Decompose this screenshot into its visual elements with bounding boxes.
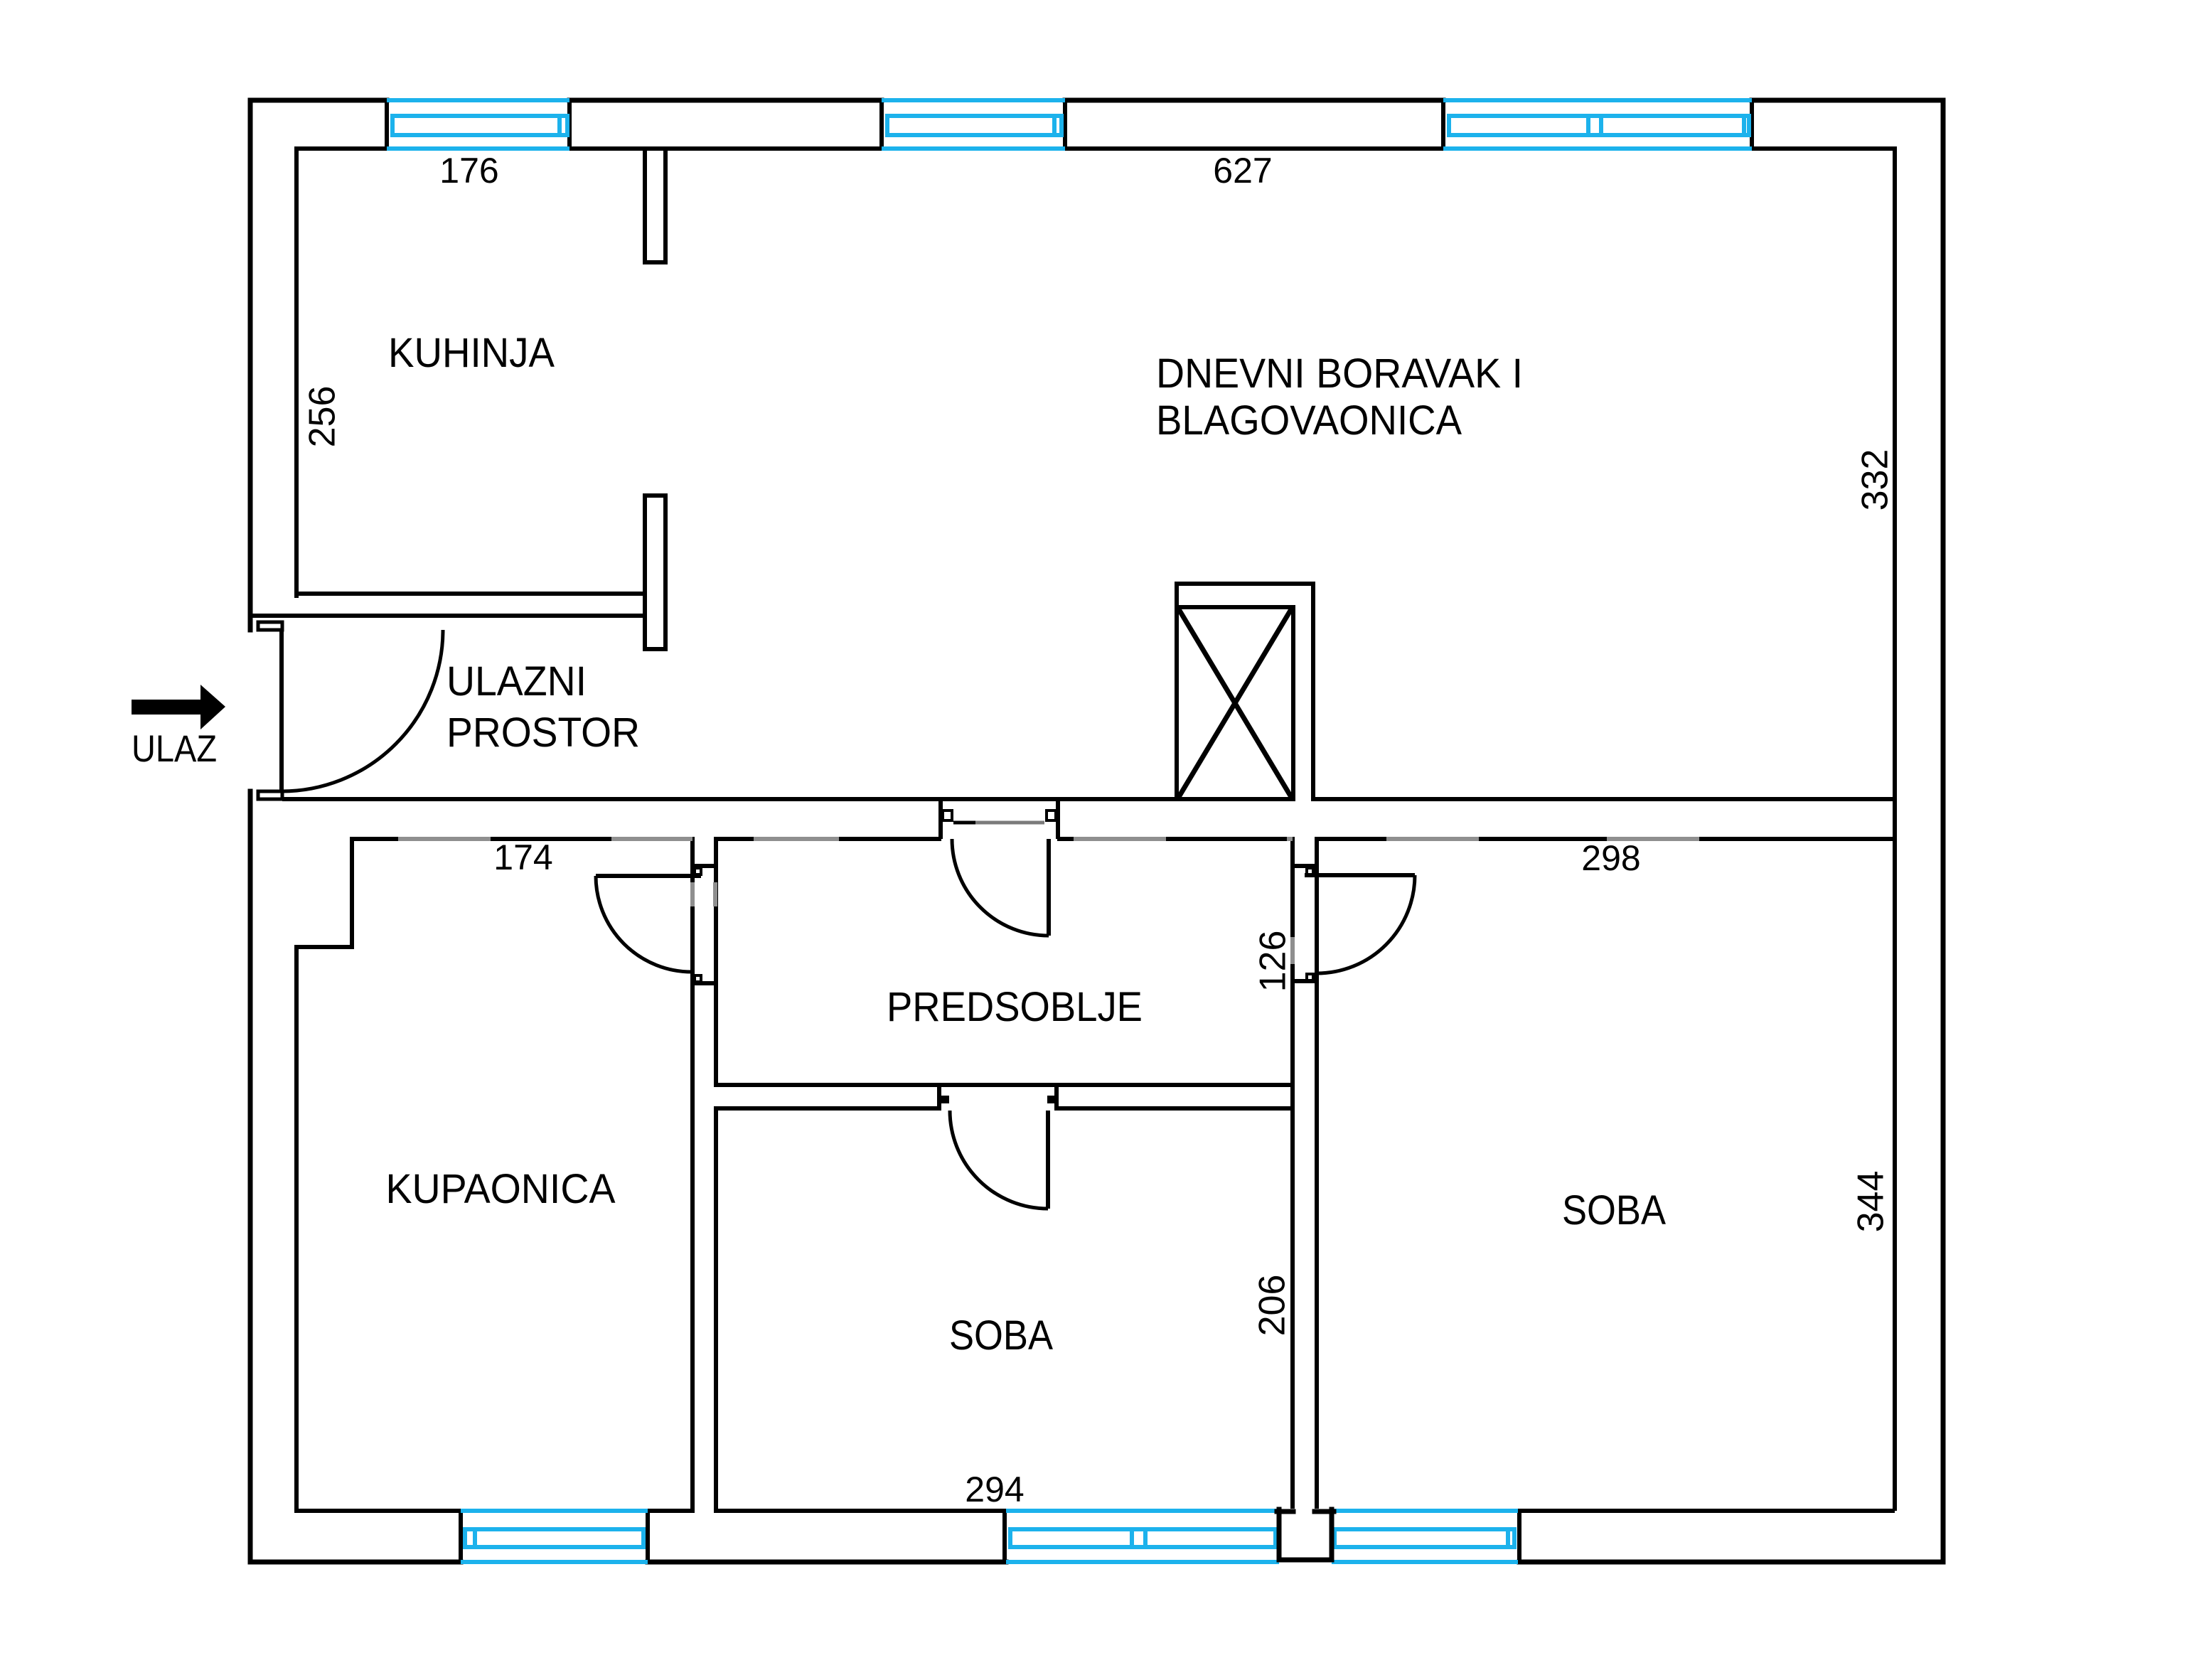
svg-text:294: 294 [965, 1470, 1024, 1509]
svg-text:DNEVNI BORAVAK I: DNEVNI BORAVAK I [1156, 351, 1523, 397]
svg-text:332: 332 [1855, 449, 1896, 511]
svg-text:SOBA: SOBA [1562, 1187, 1666, 1234]
svg-text:PREDSOBLJE: PREDSOBLJE [887, 984, 1143, 1030]
svg-text:SOBA: SOBA [949, 1312, 1053, 1359]
svg-text:BLAGOVAONICA: BLAGOVAONICA [1156, 397, 1462, 444]
svg-text:ULAZ: ULAZ [132, 728, 217, 770]
svg-text:298: 298 [1581, 838, 1640, 878]
svg-text:126: 126 [1253, 931, 1294, 993]
svg-text:ULAZNI: ULAZNI [446, 658, 587, 705]
svg-text:206: 206 [1252, 1275, 1293, 1337]
svg-text:KUPAONICA: KUPAONICA [386, 1166, 616, 1212]
svg-text:PROSTOR: PROSTOR [446, 710, 640, 756]
svg-text:KUHINJA: KUHINJA [388, 330, 555, 376]
svg-text:344: 344 [1851, 1171, 1892, 1233]
svg-text:174: 174 [493, 838, 552, 877]
svg-text:256: 256 [302, 386, 343, 448]
svg-text:627: 627 [1213, 151, 1272, 191]
svg-text:176: 176 [439, 151, 498, 191]
